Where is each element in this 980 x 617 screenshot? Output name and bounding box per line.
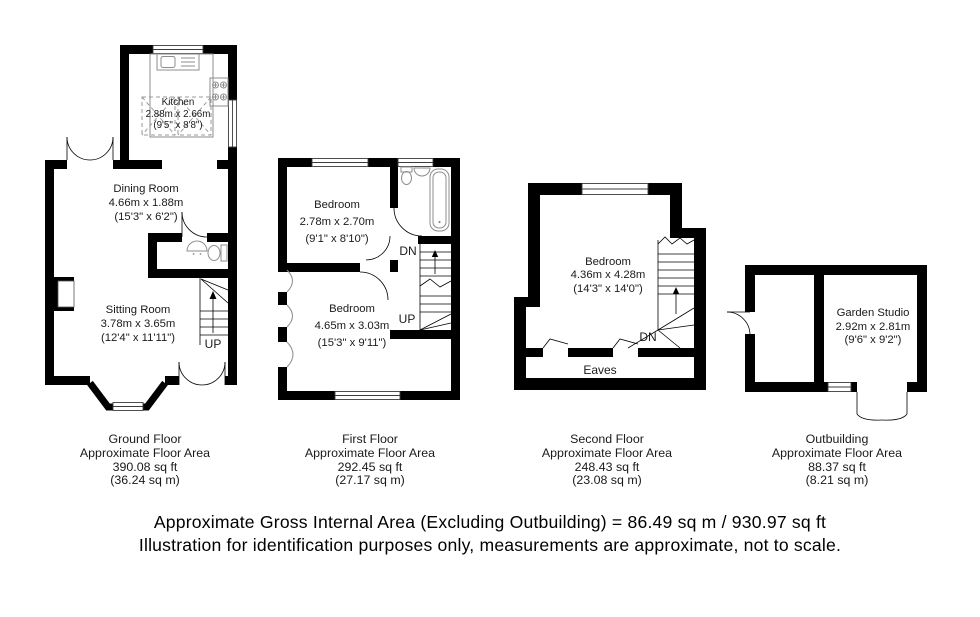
identification-note: Illustration for identification purposes… [0,534,980,557]
casement-window-icon [287,305,293,327]
floor-area-sqm: (27.17 sq m) [260,474,480,488]
floor-area-sqm: (36.24 sq m) [35,474,255,488]
room-dims-ft: (9'1" x 8'10") [305,233,368,245]
stair-direction-label: UP [205,337,222,351]
floor-name: Ground Floor [35,433,255,447]
front-doors [179,362,225,385]
room-dims-ft: (9'5" x 8'8") [153,120,202,131]
room-label: Sitting Room [106,304,171,316]
up-arrow-icon [673,287,679,294]
outbuilding-side-door [727,312,750,335]
second-floor-windows [582,184,648,195]
room-dims-ft: (15'3" x 9'11") [318,337,387,349]
floor-area-sqft: 248.43 sq ft [497,461,717,475]
room-label: Bedroom [314,199,360,211]
casement-window-icon [287,270,293,292]
eaves-label: Eaves [583,363,616,377]
basin-icon [187,241,207,251]
stair-direction-label: UP [399,312,416,326]
second-floor-text: Bedroom 4.36m x 4.28m (14'3" x 14'0") DN… [571,256,657,377]
ground-floor-caption: Ground Floor Approximate Floor Area 390.… [35,433,255,488]
room-dims-m: 2.92m x 2.81m [836,321,911,333]
room-dims-ft: (15'3" x 6'2") [114,211,177,223]
first-floor-stairs [420,244,451,330]
floor-area-sqm: (8.21 sq m) [727,474,947,488]
second-floor-plan: Bedroom 4.36m x 4.28m (14'3" x 14'0") DN… [512,182,708,394]
room-label: Dining Room [113,183,178,195]
floor-name: Second Floor [497,433,717,447]
stair-direction-label: DN [639,330,656,344]
up-arrow-icon [432,250,438,257]
french-doors [67,137,113,160]
wc-fixtures [187,241,227,261]
floor-name: First Floor [260,433,480,447]
first-floor-text: Bedroom 2.78m x 2.70m (9'1" x 8'10") Bed… [300,199,417,349]
stair-direction-label: DN [399,244,416,258]
outbuilding-caption: Outbuilding Approximate Floor Area 88.37… [727,433,947,488]
outbuilding-text: Garden Studio 2.92m x 2.81m (9'6" x 9'2"… [836,307,911,346]
basin-icon [414,168,430,176]
first-floor-caption: First Floor Approximate Floor Area 292.4… [260,433,480,488]
room-dims-m: 4.36m x 4.28m [571,269,646,281]
floorplan-sheet: Kitchen 2.88m x 2.66m (9'5" x 8'8") Dini… [0,0,980,617]
outbuilding-windows [828,383,851,392]
floor-area-sqft: 390.08 sq ft [35,461,255,475]
chimney-breast [58,281,74,307]
floor-name: Outbuilding [727,433,947,447]
floor-area-label: Approximate Floor Area [727,447,947,461]
first-floor-plan: Bedroom 2.78m x 2.70m (9'1" x 8'10") Bed… [278,158,460,403]
floor-area-sqm: (23.08 sq m) [497,474,717,488]
casement-window-icon [287,342,293,367]
room-label: Kitchen [162,97,195,108]
room-label: Bedroom [585,256,631,268]
room-dims-ft: (14'3" x 14'0") [573,283,643,295]
room-dims-ft: (9'6" x 9'2") [845,334,902,346]
floor-area-label: Approximate Floor Area [35,447,255,461]
wc-door [182,212,207,237]
toilet-icon [208,245,227,261]
bay-window [90,383,165,411]
eaves-hatches [543,339,638,348]
room-dims-m: 4.66m x 1.88m [109,197,184,209]
floor-area-sqft: 88.37 sq ft [727,461,947,475]
outbuilding-double-doors [857,392,907,420]
floor-area-label: Approximate Floor Area [260,447,480,461]
floor-area-sqft: 292.45 sq ft [260,461,480,475]
room-label: Bedroom [329,303,375,315]
room-dims-ft: (12'4" x 11'11") [101,332,175,344]
room-dims-m: 2.88m x 2.66m [146,109,211,120]
room-dims-m: 4.65m x 3.03m [315,320,390,332]
bath-icon [430,169,449,231]
footer-disclaimer: Approximate Gross Internal Area (Excludi… [0,511,980,557]
toilet-icon [401,167,412,185]
floor-area-label: Approximate Floor Area [497,447,717,461]
second-floor-caption: Second Floor Approximate Floor Area 248.… [497,433,717,488]
outbuilding-plan: Garden Studio 2.92m x 2.81m (9'6" x 9'2"… [723,262,930,432]
room-dims-m: 3.78m x 3.65m [101,318,176,330]
room-label: Garden Studio [837,307,910,319]
room-dims-m: 2.78m x 2.70m [300,216,375,228]
hob-icon [213,82,227,100]
ground-floor-plan: Kitchen 2.88m x 2.66m (9'5" x 8'8") Dini… [45,45,237,417]
ground-floor-stairs [200,278,228,345]
bathroom-fixtures [401,167,449,231]
gross-internal-area: Approximate Gross Internal Area (Excludi… [0,511,980,534]
first-floor-windows [287,159,433,400]
